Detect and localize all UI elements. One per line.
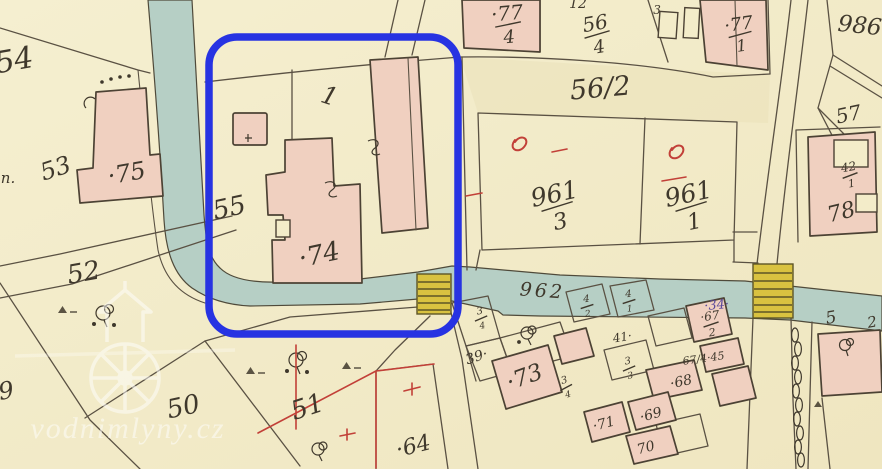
map-image: 54n.53·7555521·7456/29865778962505149·64… (0, 0, 882, 469)
fraction-numerator: ·77 (723, 12, 755, 37)
cadastral-map-canvas[interactable]: 54n.53·7555521·7456/29865778962505149·64… (0, 0, 882, 469)
building-78-notch-b (856, 194, 877, 212)
outbuilding-a (658, 11, 678, 38)
parcel-label-12: 12 (569, 0, 587, 12)
building-se-riverside (818, 330, 882, 396)
fraction-denominator: 1 (626, 304, 633, 314)
outbuilding-b (683, 8, 700, 39)
fraction-denominator: 4 (502, 26, 516, 48)
fraction-numerator: 4 (582, 294, 590, 306)
fraction-numerator: 56 (580, 9, 610, 37)
fraction-denominator: 2 (583, 309, 591, 320)
parcel-label-986: 986 (837, 11, 882, 41)
parcel-label-52: 52 (65, 255, 103, 290)
parcel-label-962: 962 (519, 278, 566, 303)
bridge-west (417, 274, 451, 314)
fraction-numerator: 42 (839, 159, 857, 176)
parcel-label-3: 3 (653, 3, 661, 17)
fraction-numerator: 4 (624, 289, 632, 301)
bridge-east (753, 264, 793, 318)
parcel-label-54: 54 (0, 40, 36, 81)
building-small-mill-yard (233, 113, 267, 145)
parcel-label-n: n. (1, 169, 15, 187)
watermark-text: vodnimlyny.cz (30, 412, 225, 445)
parcel-label-562: 56/2 (569, 70, 632, 106)
building-74-courtyard (276, 220, 290, 237)
